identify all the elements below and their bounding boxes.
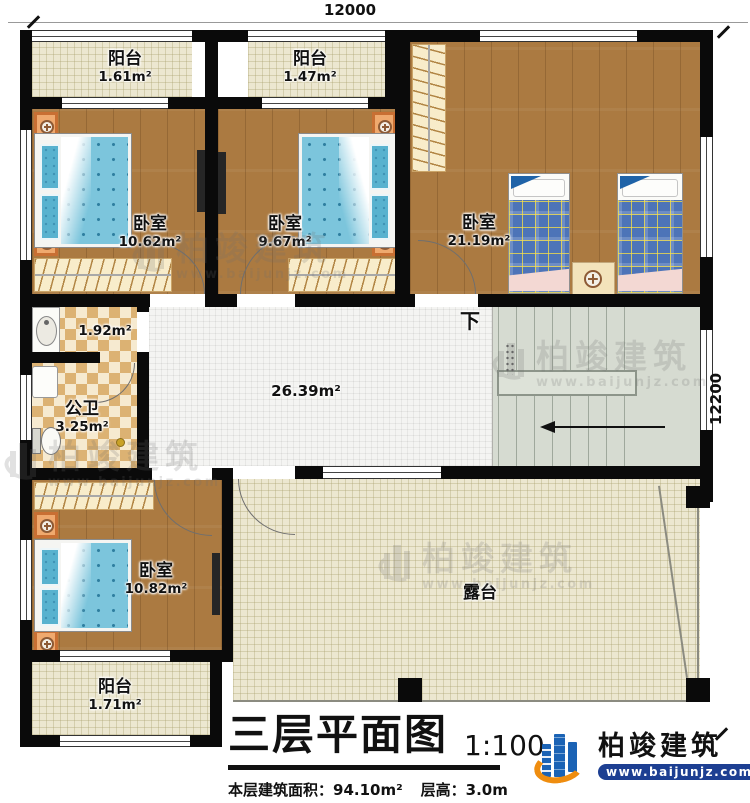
wall (222, 480, 233, 662)
title-underline (228, 765, 500, 770)
room-label-bedroom-right: 卧室 21.19m² (429, 214, 529, 249)
window (32, 30, 192, 42)
lamp-icon (378, 120, 392, 134)
wall (295, 294, 415, 307)
tv (212, 553, 220, 615)
room-label-balcony-top-mid: 阳台 1.47m² (260, 50, 360, 85)
sheet-fold (339, 137, 369, 244)
wall (478, 294, 713, 307)
lamp-icon (40, 637, 54, 651)
room-label-terrace: 露台 (440, 584, 520, 604)
wall (205, 42, 218, 97)
wall (395, 42, 410, 294)
wall (32, 650, 60, 662)
wall (20, 620, 32, 747)
wall (295, 466, 323, 479)
floor-height-text: 层高：3.0m (421, 781, 508, 799)
door-knob (116, 438, 125, 447)
window (60, 735, 190, 747)
staircase (493, 307, 700, 466)
lamp-icon (584, 270, 602, 288)
wall (20, 30, 32, 130)
terrace-post (398, 678, 422, 702)
stair-arrow-icon (540, 421, 555, 433)
tv (218, 152, 226, 214)
stair-direction-line (555, 426, 665, 428)
wall (32, 735, 60, 747)
window (60, 650, 170, 662)
wall (192, 30, 248, 42)
wardrobe (34, 482, 154, 510)
lamp-icon (40, 120, 54, 134)
floor-area-text: 本层建筑面积：94.10m² (228, 781, 403, 799)
sheet-fold (61, 543, 91, 628)
tv (197, 150, 205, 212)
faucet-icon (44, 320, 49, 325)
pillow (40, 548, 60, 586)
window (262, 97, 368, 109)
window (62, 97, 168, 109)
company-logo-icon (536, 727, 590, 785)
stair-railing (497, 370, 637, 396)
pillow (370, 144, 390, 190)
room-label-bedroom-bottom: 卧室 10.82m² (106, 562, 206, 597)
dimension-tick-icon (717, 25, 730, 38)
wall (205, 294, 237, 307)
wardrobe (412, 44, 446, 172)
wall (32, 352, 100, 363)
window (20, 375, 32, 440)
hall-stair-divider (492, 307, 493, 466)
dimension-line-top (8, 22, 748, 23)
pillow (40, 194, 60, 240)
sheet-fold (61, 137, 91, 244)
lamp-icon (40, 519, 54, 533)
room-label-balcony-top-left: 阳台 1.61m² (75, 50, 175, 85)
wall (137, 352, 149, 480)
pillow (40, 144, 60, 190)
dimension-top: 12000 (300, 1, 400, 19)
stair-down-label: 下 (456, 310, 484, 333)
wall (20, 440, 32, 540)
room-label-hall: 26.39m² (256, 383, 356, 400)
terrace-edge-right (697, 500, 699, 685)
wall (700, 42, 713, 137)
terrace-post (686, 678, 710, 702)
wall (168, 97, 218, 109)
pillow (370, 194, 390, 240)
wall (385, 30, 480, 42)
wall (20, 468, 152, 480)
wall (20, 260, 32, 375)
window (480, 30, 637, 42)
plan-info: 本层建筑面积：94.10m²层高：3.0m (228, 779, 545, 800)
nightstand (34, 512, 58, 538)
stair-break-dots (505, 343, 515, 375)
wall (170, 650, 222, 662)
room-label-wash-area: 1.92m² (70, 324, 140, 340)
room-label-bedroom-top-mid: 卧室 9.67m² (235, 215, 335, 250)
toilet-tank (32, 428, 41, 454)
window (20, 540, 32, 620)
wall (190, 735, 222, 747)
washing-machine (32, 366, 58, 398)
floor-plan-canvas: 12000 12200 (0, 0, 750, 803)
nightstand (572, 262, 615, 295)
room-label-balcony-bottom: 阳台 1.71m² (65, 678, 165, 713)
company-name: 柏竣建筑 (598, 732, 750, 762)
dimension-right: 12200 (707, 359, 725, 439)
plan-title: 三层平面图 (228, 710, 448, 759)
wall (441, 466, 713, 479)
room-label-bathroom: 公卫 3.25m² (47, 400, 117, 435)
wall (205, 109, 218, 294)
window (323, 466, 441, 479)
wall (218, 97, 262, 109)
window (248, 30, 385, 42)
wall (137, 294, 149, 312)
title-block: 三层平面图1:100 本层建筑面积：94.10m²层高：3.0m (228, 701, 545, 800)
wall (32, 97, 62, 109)
room-label-bedroom-top-left: 卧室 10.62m² (100, 215, 200, 250)
window (20, 130, 32, 260)
wall (637, 30, 713, 42)
wall (20, 294, 150, 307)
pillow (40, 588, 60, 626)
wardrobe (288, 258, 396, 292)
company-logo: 柏竣建筑 www.baijunjz.com (536, 727, 750, 785)
window (700, 137, 713, 257)
wall (212, 468, 233, 480)
plan-scale: 1:100 (464, 729, 545, 762)
company-website: www.baijunjz.com (598, 764, 750, 780)
single-bed (617, 173, 683, 294)
